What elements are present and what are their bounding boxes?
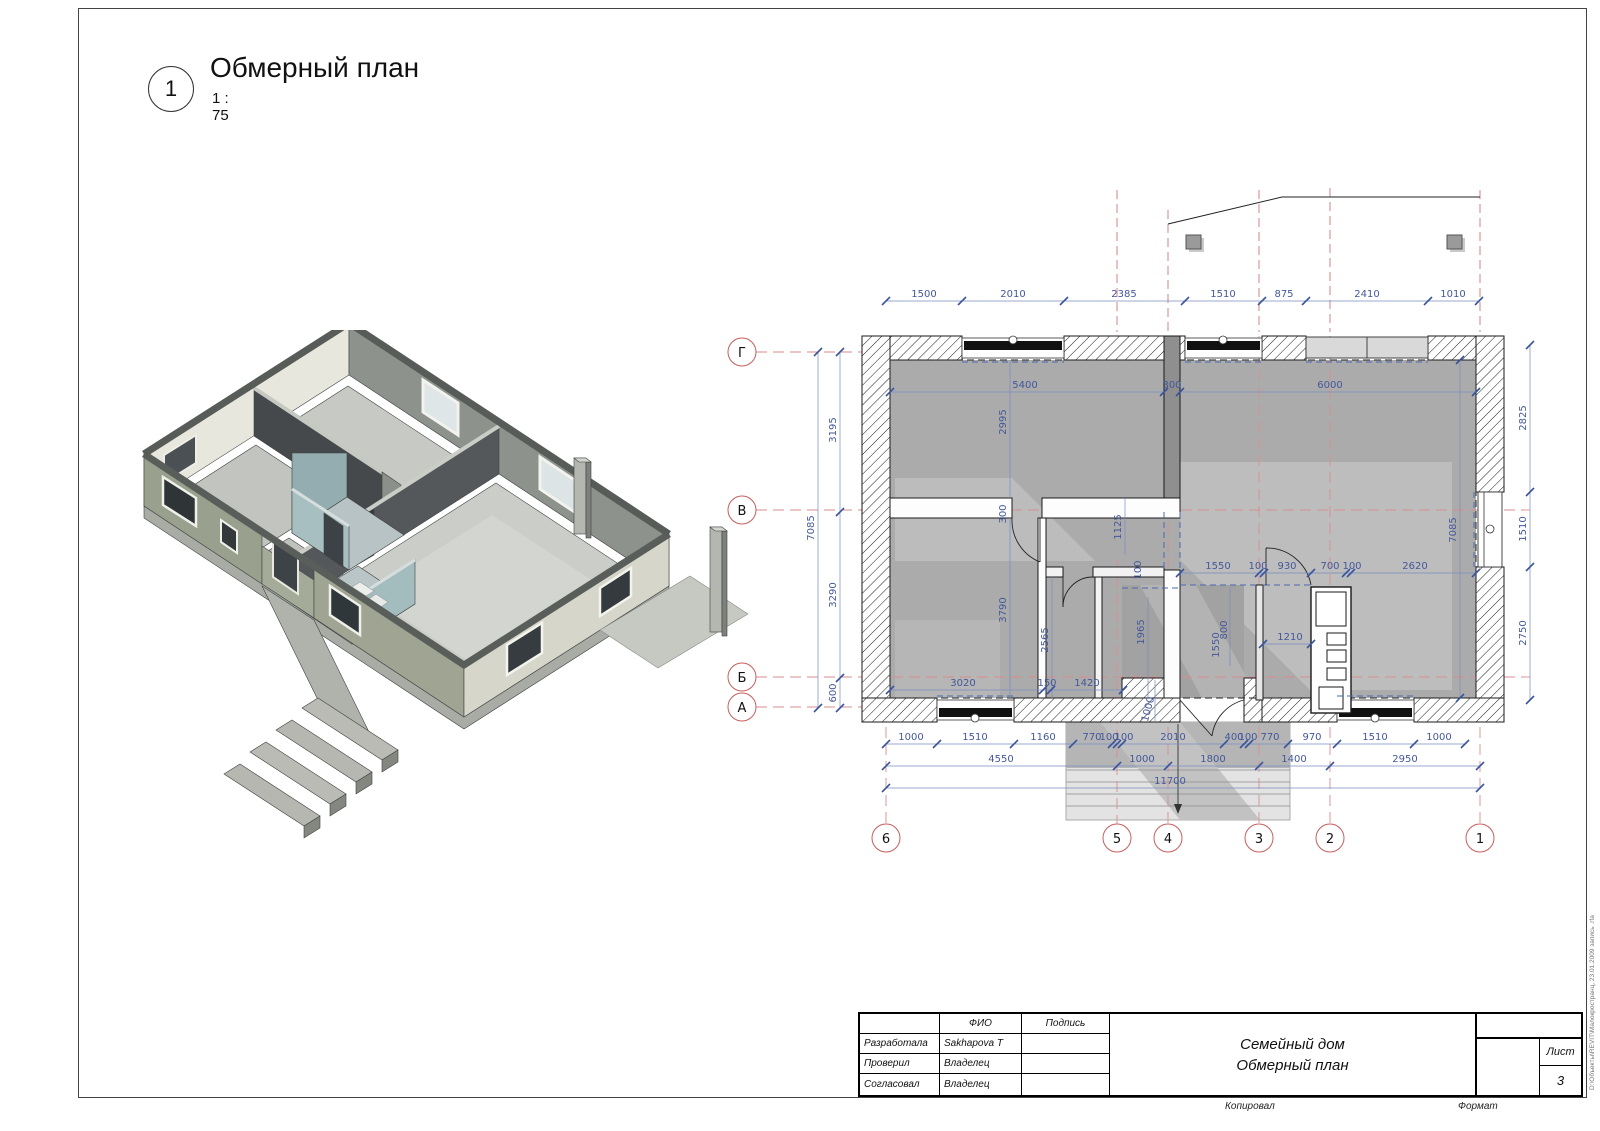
grid-col-label: 2 [1326, 832, 1334, 847]
tb-sign-3 [1022, 1074, 1110, 1095]
tb-role-1: Разработала [860, 1034, 940, 1054]
dim: 11700 [1154, 776, 1186, 787]
dim: 875 [1274, 289, 1293, 300]
dim: 3195 [828, 417, 839, 442]
dim: 300 [998, 504, 1009, 523]
dim: 1420 [1074, 678, 1099, 689]
dim: 1400 [1281, 754, 1306, 765]
tb-col-sign: Подпись [1022, 1014, 1110, 1034]
tb-name-1: Sakhapova T [940, 1034, 1022, 1054]
axon-steps [224, 698, 398, 838]
dim: 100 [1342, 561, 1361, 572]
grid-col-label: 5 [1113, 832, 1121, 847]
dim: 1510 [962, 732, 987, 743]
tb-name-2: Владелец [940, 1054, 1022, 1074]
grid-col-label: 4 [1164, 832, 1172, 847]
dim: 5400 [1012, 380, 1037, 391]
tb-project-cell: Семейный дом Обмерный план [1110, 1014, 1477, 1095]
tb-sheet-number: 3 [1539, 1066, 1581, 1095]
dim: 100 [1114, 732, 1133, 743]
dim: 2010 [1160, 732, 1185, 743]
dim: 2620 [1402, 561, 1427, 572]
dim: 1510 [1210, 289, 1235, 300]
dim: 1965 [1136, 619, 1147, 644]
dim: 2995 [998, 409, 1009, 434]
dim: 600 [828, 683, 839, 702]
dim: 2010 [1000, 289, 1025, 300]
chimney-1 [1186, 235, 1204, 252]
dim: 2410 [1354, 289, 1379, 300]
dim: 1500 [911, 289, 936, 300]
dim: 1160 [1030, 732, 1055, 743]
sheet-border-right [1586, 8, 1587, 1098]
dim: 6000 [1317, 380, 1342, 391]
tb-col-fio: ФИО [940, 1014, 1022, 1034]
dim: 300 [1162, 380, 1181, 391]
tb-sign-2 [1022, 1054, 1110, 1074]
view-number: 1 [165, 76, 177, 102]
axon-pillar-1 [574, 458, 591, 538]
view-number-bubble: 1 [148, 66, 194, 112]
dim: 3020 [950, 678, 975, 689]
dim: 1000 [898, 732, 923, 743]
tb-name-3: Владелец [940, 1074, 1022, 1095]
tb-empty-header [860, 1014, 940, 1034]
dim: 7085 [1448, 517, 1459, 542]
chimney-2 [1447, 235, 1465, 252]
floor-plan: Г В Б А 6 5 4 3 2 1 [700, 160, 1560, 860]
dim: 1125 [1113, 514, 1124, 539]
dim: 1550 [1211, 632, 1222, 657]
grid-col-label: 6 [882, 832, 890, 847]
grid-row-label: Б [738, 671, 747, 686]
dim: 4550 [988, 754, 1013, 765]
tb-project-name: Семейный дом [1240, 1034, 1345, 1055]
footer-copied-label: Копировал [1225, 1101, 1275, 1112]
dim: 100 [1133, 560, 1144, 579]
shaft-block [1311, 587, 1351, 713]
view-title: Обмерный план [210, 52, 419, 84]
roof-edge [1168, 197, 1480, 224]
tb-role-2: Проверил [860, 1054, 940, 1074]
tb-right-section: Лист 3 [1477, 1014, 1581, 1095]
tb-sign-1 [1022, 1034, 1110, 1054]
dim: 1010 [1440, 289, 1465, 300]
grid-col-label: 1 [1476, 832, 1484, 847]
dim: 1800 [1200, 754, 1225, 765]
dim: 1000 [1129, 754, 1154, 765]
tb-right-empty [1477, 1037, 1539, 1095]
dim: 100 [1248, 561, 1267, 572]
tb-drawing-name: Обмерный план [1236, 1055, 1348, 1076]
sheet-border-bottom [78, 1097, 1586, 1098]
dim: 2385 [1111, 289, 1136, 300]
view-scale: 1 : 75 [212, 90, 229, 124]
grid-col-label: 3 [1255, 832, 1263, 847]
dim: 2950 [1392, 754, 1417, 765]
grid-row-label: В [738, 504, 747, 519]
tb-role-3: Согласовал [860, 1074, 940, 1095]
dim: 1210 [1277, 632, 1302, 643]
file-path-watermark: D:\Объекты\REVIT\Малокространц, 23.01.20… [1589, 915, 1596, 1090]
drawing-sheet: 1 Обмерный план 1 : 75 [0, 0, 1600, 1131]
footer-format-label: Формат [1458, 1101, 1498, 1112]
dim: 1510 [1362, 732, 1387, 743]
dim: 2750 [1518, 620, 1529, 645]
axonometric-view [130, 330, 760, 840]
dim: 1000 [1426, 732, 1451, 743]
dim: 150 [1037, 678, 1056, 689]
dim: 3790 [998, 597, 1009, 622]
title-block: ФИО Подпись Разработала Sakhapova T Пров… [858, 1012, 1583, 1097]
dim: 100 [1238, 732, 1257, 743]
roof-outline [1117, 188, 1480, 332]
dim: 770 [1260, 732, 1279, 743]
dim: 3290 [828, 582, 839, 607]
sheet-border-top [78, 8, 1586, 9]
tb-sheet-label: Лист [1539, 1037, 1581, 1066]
grid-row-label: Г [738, 346, 746, 361]
dim: 930 [1277, 561, 1296, 572]
dim: 2565 [1040, 627, 1051, 652]
dim: 1550 [1205, 561, 1230, 572]
grid-row-label: А [738, 701, 747, 716]
dim: 7085 [806, 515, 817, 540]
dim: 2825 [1518, 405, 1529, 430]
sheet-border-left [78, 8, 79, 1098]
dim: 700 [1320, 561, 1339, 572]
dim: 970 [1302, 732, 1321, 743]
dim: 1510 [1518, 516, 1529, 541]
